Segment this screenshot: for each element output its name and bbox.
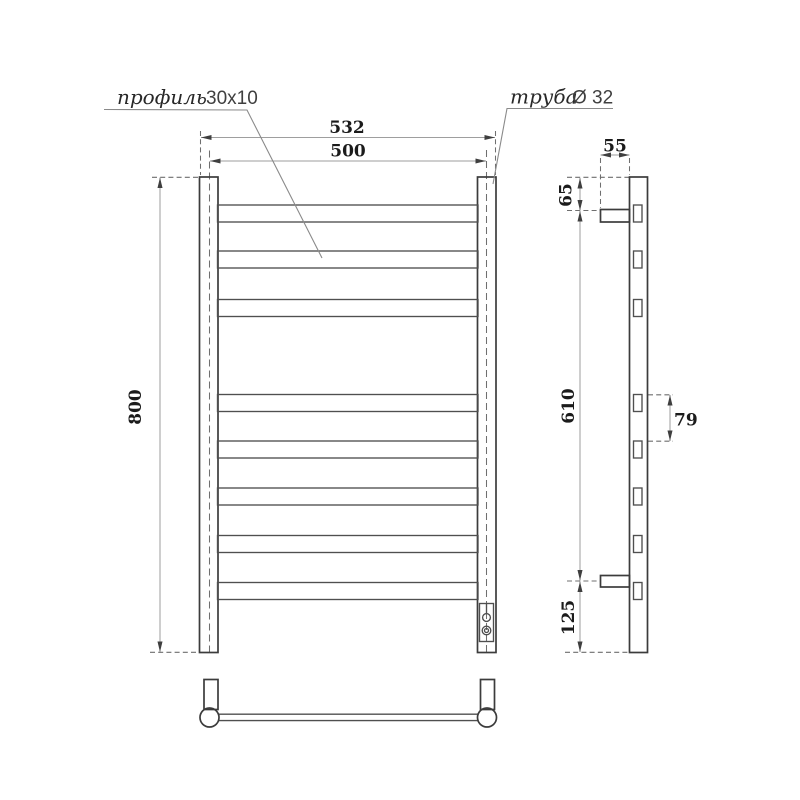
profile-label: профиль	[117, 85, 207, 109]
pipe-size-label: Ø 32	[572, 88, 613, 109]
rung-slots	[634, 205, 643, 600]
rung-slot	[634, 536, 643, 553]
control-ring-inner-icon	[485, 629, 489, 633]
rung	[218, 583, 479, 600]
rung-slot	[634, 583, 643, 600]
dim-overall-width-value: 532	[329, 118, 365, 138]
side-view: 55 65 610 125 79	[557, 137, 698, 653]
profile-leader-line	[104, 110, 322, 259]
rung	[218, 395, 479, 412]
front-view: 532 500 800	[126, 118, 496, 655]
dim-bottom-offset: 125	[559, 582, 580, 653]
pipe-label: труба	[510, 85, 578, 109]
dim-rung-spacing: 79	[670, 395, 698, 441]
dim-overall-height: 800	[126, 178, 160, 653]
top-wall-bracket	[601, 210, 630, 223]
top-view	[200, 680, 497, 728]
dim-rail-width-value: 500	[330, 142, 366, 162]
dim-overall-width: 532	[201, 118, 495, 138]
dim-bottom-offset-value: 125	[559, 600, 579, 636]
rungs	[218, 205, 479, 600]
bottom-wall-bracket	[601, 576, 630, 588]
pipe-callout: труба Ø 32	[493, 85, 613, 185]
rung	[218, 251, 479, 268]
dim-overall-height-value: 800	[126, 389, 146, 425]
rung-slot	[634, 441, 643, 458]
left-bracket-plan	[204, 680, 218, 710]
right-pipe-section	[478, 708, 497, 727]
rung-slot	[634, 395, 643, 412]
profile-size-label: 30x10	[206, 88, 258, 109]
dim-top-offset: 65	[557, 178, 581, 211]
towel-rail-drawing: 532 500 800	[0, 0, 800, 800]
dim-rail-width: 500	[210, 142, 486, 162]
dim-bracket-depth-value: 55	[603, 137, 627, 157]
dim-bracket-span-value: 610	[559, 388, 579, 424]
pipe-leader-line	[493, 109, 613, 185]
drawing-canvas: 532 500 800	[0, 0, 800, 800]
left-pipe-section	[200, 708, 219, 727]
right-bracket-plan	[481, 680, 495, 710]
rung	[218, 441, 479, 458]
rung	[218, 488, 479, 505]
profile-callout: профиль 30x10	[104, 85, 322, 258]
rung-slot	[634, 205, 643, 222]
dim-top-offset-value: 65	[557, 183, 577, 207]
rung	[218, 536, 479, 553]
rung-slot	[634, 300, 643, 317]
rung	[218, 205, 479, 222]
rung-slot	[634, 488, 643, 505]
side-post	[630, 177, 648, 653]
rung-slot	[634, 251, 643, 268]
dim-bracket-span: 610	[559, 211, 580, 581]
dim-rung-spacing-value: 79	[674, 411, 698, 431]
left-post	[200, 177, 219, 653]
dim-bracket-depth: 55	[601, 137, 630, 157]
rung	[218, 300, 479, 317]
